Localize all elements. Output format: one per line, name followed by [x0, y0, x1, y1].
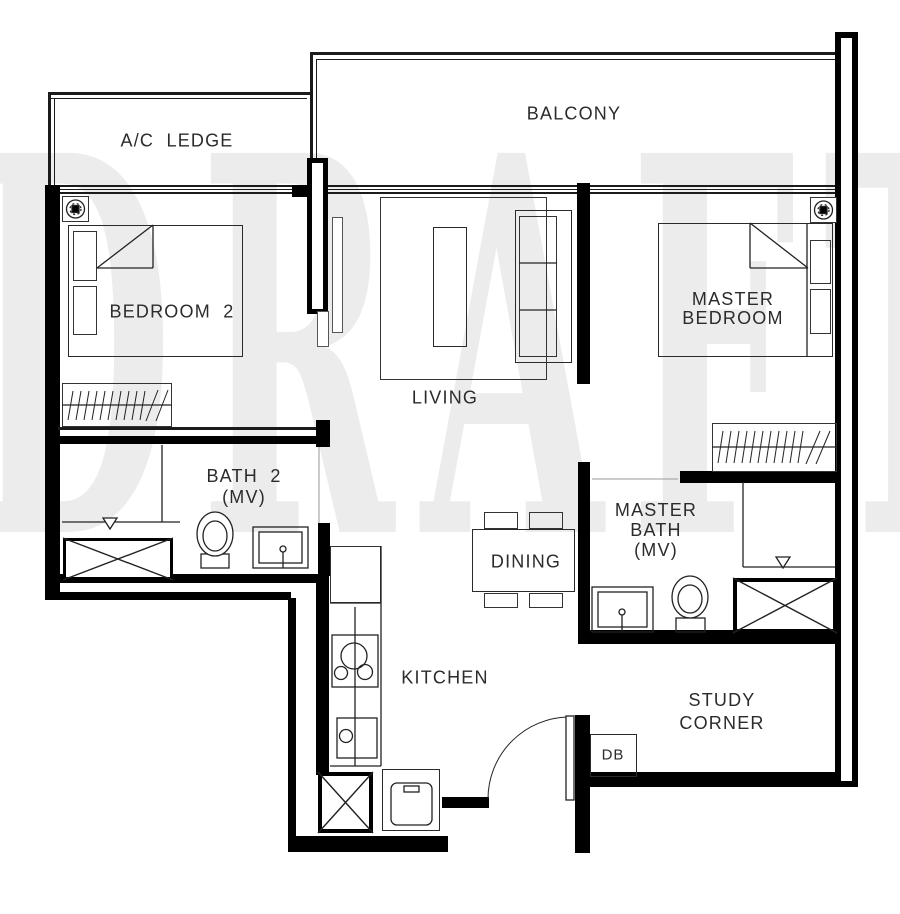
- washing-machine: [382, 769, 440, 831]
- chair: [529, 593, 563, 608]
- window-line: [48, 189, 837, 190]
- chair: [484, 593, 518, 608]
- sofa-cushions: [519, 216, 557, 357]
- sliding-door-panel: [317, 311, 329, 347]
- room-label-master-bath: MASTER BATH (MV): [615, 500, 697, 560]
- wardrobe: [712, 423, 837, 472]
- wall-kitchen-outer: [288, 598, 296, 848]
- shaft-box: [318, 772, 373, 833]
- wall-left: [45, 185, 60, 599]
- aircon-unit: [810, 197, 837, 223]
- floor-plan-canvas: DRAFT: [0, 0, 900, 914]
- pillow: [73, 286, 97, 335]
- wall-door-jamb: [442, 797, 489, 808]
- wall-kitchen-inner: [316, 574, 329, 775]
- wall-bottom: [288, 836, 448, 852]
- balcony-parapet: [310, 52, 313, 160]
- shaft-box: [63, 538, 173, 580]
- wall-bedroom2-bottom: [58, 427, 316, 430]
- chair: [484, 512, 518, 529]
- shaft-box: [733, 578, 837, 633]
- room-label-ac-ledge: A/C LEDGE: [120, 132, 233, 151]
- room-label-study-corner: STUDY CORNER: [679, 689, 764, 735]
- room-label-master-bedroom: MASTER BEDROOM: [682, 290, 783, 328]
- pillow: [73, 231, 97, 281]
- wall-right: [835, 32, 858, 787]
- wall-endcap: [316, 420, 330, 447]
- wall-bedroom2-bottom: [58, 436, 316, 444]
- window-line: [48, 185, 837, 187]
- wall-masterbath-top: [680, 471, 837, 483]
- ac-ledge-wall: [48, 98, 307, 99]
- pillow: [810, 240, 831, 284]
- room-label-bedroom2: BEDROOM 2: [109, 303, 234, 322]
- sliding-door-panel: [332, 217, 343, 333]
- ac-ledge-wall: [48, 92, 311, 95]
- wall-column: [307, 158, 328, 314]
- wall-masterbath-left: [578, 462, 590, 644]
- balcony-parapet: [316, 59, 837, 60]
- aircon-unit: [62, 196, 89, 222]
- chair: [529, 512, 563, 529]
- ac-ledge-wall: [54, 98, 55, 187]
- room-label-kitchen: KITCHEN: [401, 669, 488, 688]
- coffee-table: [433, 227, 467, 347]
- balcony-parapet: [316, 59, 317, 160]
- pillow: [810, 289, 831, 334]
- wall-stub: [292, 185, 308, 197]
- balcony-parapet: [310, 52, 837, 55]
- wall-living-master: [577, 183, 590, 384]
- wardrobe: [62, 383, 172, 427]
- ac-ledge-wall: [48, 92, 51, 187]
- wall-bath2-bottom: [45, 592, 291, 600]
- room-label-balcony: BALCONY: [527, 105, 621, 124]
- wall-bath2-right: [318, 523, 330, 576]
- window-line: [48, 192, 838, 194]
- db-label: DB: [602, 746, 625, 765]
- fridge: [330, 546, 381, 603]
- room-label-dining: DINING: [491, 553, 561, 572]
- room-label-living: LIVING: [412, 389, 478, 408]
- room-label-bath2: BATH 2 (MV): [206, 466, 281, 508]
